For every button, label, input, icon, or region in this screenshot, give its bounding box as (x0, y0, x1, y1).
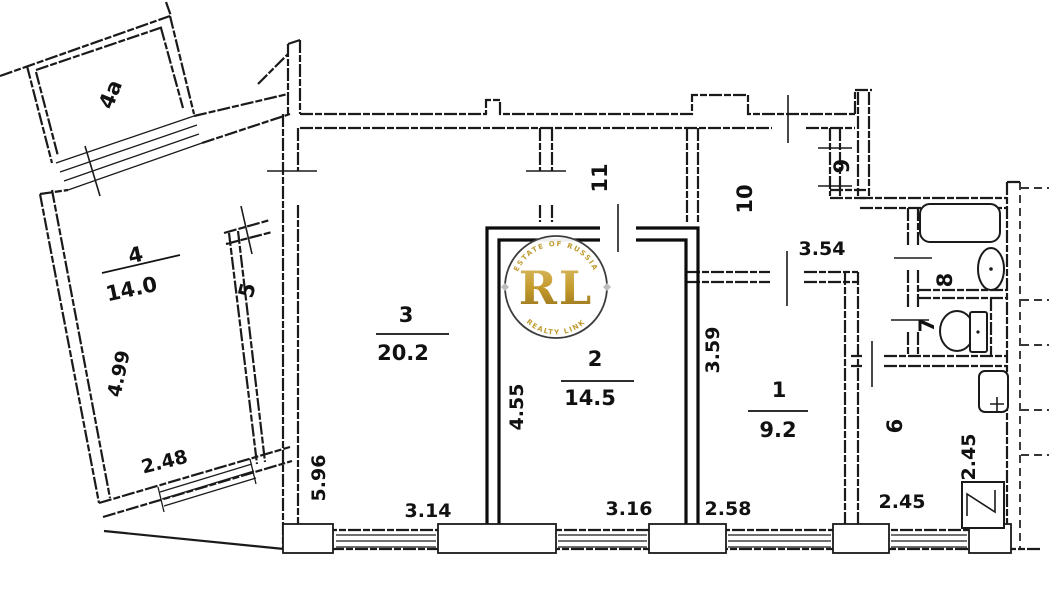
room-4a-walls (0, 2, 194, 163)
room-8-label: 8 (933, 273, 957, 288)
dim-room3-width: 3.14 (405, 500, 452, 522)
door-tick-4a (85, 146, 100, 196)
wing-bottom-wall (99, 447, 292, 517)
right-wall-dashed (1020, 182, 1049, 549)
room3-east-wall (540, 128, 552, 222)
bath-sink-drain (989, 267, 993, 271)
room-11-label: 11 (588, 163, 612, 192)
top-wall (300, 95, 855, 128)
door-tick-5 (241, 206, 252, 254)
toilet-bowl-icon (940, 311, 974, 351)
room1-east-wall (845, 272, 858, 530)
room-1-area: 9.2 (759, 418, 796, 442)
toilet-dot (976, 330, 979, 333)
wall-pier (833, 524, 889, 553)
wing-connector-walls (194, 40, 300, 143)
wall-pier (438, 524, 556, 553)
room-4a-label: 4а (94, 77, 127, 113)
bathtub-icon (920, 204, 1000, 242)
room-9-label: 9 (830, 159, 854, 174)
kitchen-top-wall (851, 356, 1007, 366)
window-hatch-room1 (728, 535, 831, 547)
window-hatch-room2 (558, 535, 647, 547)
wing-outline-line (104, 531, 284, 549)
room-2-area: 14.5 (564, 386, 616, 410)
dim-room3-length: 5.96 (308, 455, 330, 502)
left-wall (283, 114, 298, 549)
dim-kitchen-width: 2.45 (879, 491, 926, 513)
room1-top-wall (687, 272, 858, 282)
dim-room1-width: 2.58 (705, 498, 752, 520)
nook-east-wall (908, 208, 918, 356)
bath-wc-divider (918, 290, 1007, 298)
window-hatch-kitchen (891, 535, 967, 547)
watermark: ESTATE OF RUSSIA REALTY LINK RL (501, 236, 611, 338)
floor-plan-svg: 4а 4 14.0 5 3 20.2 2 14.5 1 9.2 11 10 9 … (0, 0, 1051, 600)
floor-plan-page: 4а 4 14.0 5 3 20.2 2 14.5 1 9.2 11 10 9 … (0, 0, 1051, 600)
room-4a-window-hatch (56, 116, 202, 190)
wall-pier (649, 524, 726, 553)
room-3-label: 3 (399, 303, 414, 327)
dim-room4-length: 4.99 (103, 349, 134, 399)
wall-pier (283, 524, 333, 553)
room-2-label: 2 (588, 347, 603, 371)
dim-hall10-width: 3.54 (799, 238, 846, 260)
room-4-area: 14.0 (104, 272, 160, 306)
dim-room4-width: 2.48 (139, 446, 190, 479)
dim-room2-length: 4.55 (506, 384, 528, 431)
right-wall (1007, 182, 1020, 549)
top-right-step-wall (855, 90, 872, 196)
dim-room1-length: 3.59 (702, 327, 724, 374)
watermark-initials: RL (519, 261, 594, 315)
stove-icon (979, 371, 1008, 412)
room-7-label: 7 (915, 318, 939, 333)
dim-room2-width: 3.16 (606, 498, 653, 520)
room-6-label: 6 (883, 419, 907, 434)
room-1-label: 1 (772, 378, 787, 402)
dim-kitchen-depth: 2.45 (958, 434, 980, 481)
window-hatch-room3 (336, 535, 436, 547)
room-5-walls (224, 220, 272, 464)
hall11-east-wall (687, 128, 698, 222)
room-3-area: 20.2 (377, 341, 429, 365)
room-10-label: 10 (733, 184, 757, 213)
room-4-walls (40, 190, 110, 503)
